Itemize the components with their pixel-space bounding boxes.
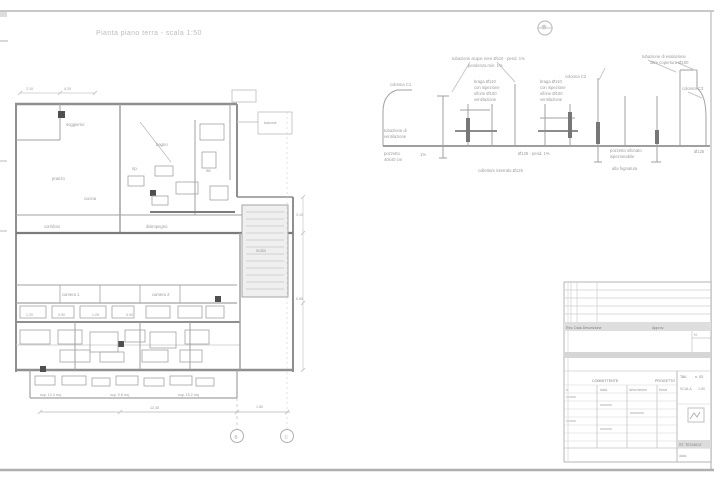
column: [40, 366, 46, 372]
date-label: data:: [679, 454, 687, 458]
schem-label: tubazione acque nere Ø110 - pend. 1%: [452, 56, 525, 61]
revision-header: Rev. Data Descrizione: [566, 326, 601, 330]
reference-circle-icon: [537, 21, 553, 35]
column: [215, 296, 221, 302]
dim-label: 1.25: [92, 313, 99, 317]
schem-label: ventilazione: [384, 134, 407, 139]
dim-label: 6.85: [296, 297, 303, 301]
notch-label: N.: [694, 333, 698, 337]
schem-label: pozzetto: [384, 151, 401, 156]
room-label: camera 1: [62, 292, 80, 297]
room-label: balcone: [264, 121, 277, 125]
schem-label: 40x40 cm: [384, 157, 403, 162]
grid-col-header: firma: [659, 388, 667, 392]
column: [118, 341, 124, 347]
dim-label: 12.45: [150, 406, 159, 410]
title-block: Rev. Data Descrizione Approv. N. COMMITT…: [564, 282, 711, 462]
room-label: rip.: [132, 166, 138, 171]
schem-label: pendenza min. 1%: [468, 63, 503, 68]
schem-label: sifone Ø100: [474, 91, 497, 96]
schem-label: 1%: [420, 152, 426, 157]
scale-label: SCALA: [680, 387, 692, 391]
floor-plan: 2.10 4.20 soggiorno pranzo cucina bagno …: [15, 87, 305, 443]
schem-label: braga Ø110: [474, 79, 496, 84]
drawing-sheet: Pianta piano terra - scala 1:50: [0, 0, 720, 480]
room-label: scala: [256, 248, 266, 253]
note-label: sup. 12.4 mq: [40, 393, 61, 397]
note-label: sup. 9.8 mq: [110, 393, 129, 397]
room-label: camera 2: [152, 292, 170, 297]
schem-label: pozzetto sifonato: [610, 148, 642, 153]
schem-label: colonna C2: [565, 74, 587, 79]
schem-label: collettore interrato Ø125: [478, 168, 524, 173]
schem-label: colonna C1: [390, 82, 412, 87]
room-label: wc: [206, 168, 211, 173]
room-label: cucina: [84, 196, 97, 201]
schem-label: Ø125 - pend. 1%: [518, 151, 550, 156]
schem-label: ventilazione: [540, 97, 563, 102]
room-label: pranzo: [52, 176, 65, 181]
plumbing-schematic: colonna C1 tubazione di ventilazione poz…: [383, 54, 710, 173]
schem-label: colonna C3: [682, 86, 704, 91]
dim-label: 2.10: [26, 87, 33, 91]
dim-label: 4.20: [64, 87, 71, 91]
dim-label: 3.10: [296, 213, 303, 217]
approval-header: Approv.: [652, 326, 664, 330]
schem-label: oltre copertura Ø100: [650, 60, 689, 65]
note-label: sup. 15.2 mq: [178, 393, 199, 397]
plan-title: Pianta piano terra - scala 1:50: [96, 30, 202, 37]
dim-label: 1.20: [26, 313, 33, 317]
schem-label: con ispezione: [540, 85, 566, 90]
scanned-drawing: Pianta piano terra - scala 1:50: [0, 0, 720, 480]
room-label: soggiorno: [66, 122, 85, 127]
grid-bubble-label: C: [285, 435, 289, 440]
sheet-label: TAV.: [680, 375, 687, 379]
grid-bubble-label: B: [235, 435, 238, 440]
schem-label: alla fognatura: [612, 166, 638, 171]
schem-label: ventilazione: [474, 97, 497, 102]
project-header: PROGETTO: [655, 379, 675, 383]
schem-label: sifone Ø100: [540, 91, 563, 96]
grid-col-header: data: [600, 388, 607, 392]
dim-label: 0.90: [126, 313, 133, 317]
firm-name: ST. TECNICO: [679, 443, 702, 447]
room-label: bagno: [156, 142, 168, 147]
column: [150, 190, 156, 196]
room-label: corridoio: [44, 224, 61, 229]
schem-label: braga Ø110: [540, 79, 562, 84]
grid-col-header: descrizione: [629, 388, 647, 392]
scale-value: 1:50: [698, 387, 705, 391]
schem-label: tubazione di: [384, 128, 407, 133]
dim-label: 1.50: [256, 405, 263, 409]
grid-col-header: n.: [566, 388, 569, 392]
sheet-number: n. 03: [695, 375, 703, 379]
dim-label: 0.90: [58, 313, 65, 317]
schem-label: ispezionabile: [610, 154, 635, 159]
schem-label: con ispezione: [474, 85, 500, 90]
schem-label: Ø125: [694, 149, 705, 154]
client-header: COMMITTENTE: [592, 379, 619, 383]
column: [58, 111, 65, 118]
room-label: disimpegno: [146, 224, 168, 229]
schem-label: tubazione di esalazione: [642, 54, 686, 59]
